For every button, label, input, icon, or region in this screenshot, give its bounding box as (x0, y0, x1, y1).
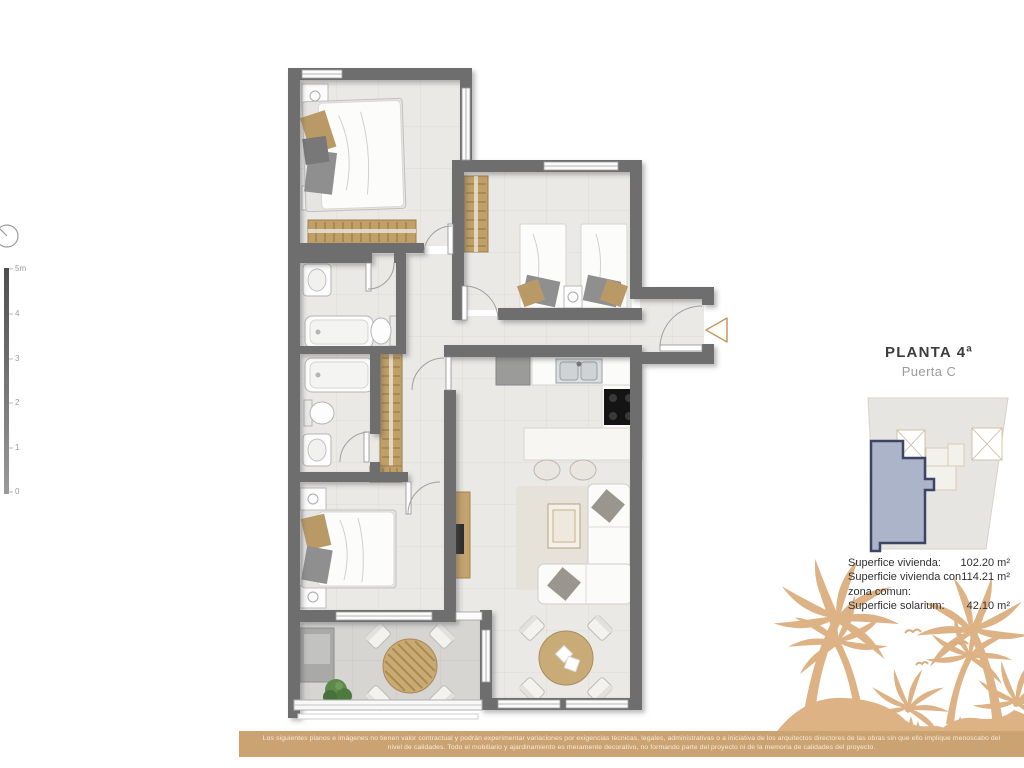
surface-label: Superficie vivienda con zona comun: (848, 570, 961, 599)
disclaimer-bar: Los siguientes planos e imágenes no tien… (239, 731, 1024, 757)
toilet (371, 316, 398, 346)
unit-highlight (871, 441, 934, 551)
floorplan-graphics: 5m 4 3 2 1 0 (0, 0, 1024, 768)
island (524, 428, 642, 460)
toilet (304, 400, 334, 426)
disclaimer-text: Los siguientes planos e imágenes no tien… (239, 731, 1024, 752)
tv (456, 524, 464, 554)
surface-row: Superfice vivienda: 102.20 m² (848, 556, 1010, 570)
plan-header: PLANTA 4ª Puerta C (837, 344, 1021, 379)
compass-icon (0, 225, 18, 247)
entrance-arrow-icon (706, 318, 727, 342)
double-bed (299, 98, 406, 212)
surface-value: 42.10 m² (967, 599, 1010, 613)
surface-row: Superficie solarium: 42.10 m² (848, 599, 1010, 613)
kitchen-sink (556, 359, 602, 383)
coffee-table (548, 504, 580, 548)
scale-tick-2: 2 (15, 398, 20, 407)
surface-value: 114.21 m² (961, 570, 1010, 584)
wardrobe (308, 220, 416, 244)
floorplan-sheet: 5m 4 3 2 1 0 (0, 0, 1024, 768)
scale-tick-1: 1 (15, 443, 20, 452)
twin-bed (517, 224, 566, 308)
nightstand (564, 286, 582, 308)
surface-row: Superficie vivienda con zona comun: 114.… (848, 570, 1010, 599)
surface-summary: Superfice vivienda: 102.20 m² Superficie… (848, 556, 1010, 613)
scale-tick-4: 4 (15, 309, 20, 318)
page-subtitle: Puerta C (837, 364, 1021, 379)
bar-stool (534, 460, 560, 480)
terrace-railing (294, 700, 482, 719)
scale-tick-3: 3 (15, 354, 20, 363)
hallway-closet (380, 350, 402, 482)
wardrobe (464, 176, 488, 252)
scale-tick-5m: 5m (15, 264, 26, 273)
scale-bar: 5m 4 3 2 1 0 (4, 264, 26, 496)
tall-cabinet (496, 357, 530, 385)
double-bed (301, 510, 396, 588)
twin-bed (581, 224, 628, 308)
surface-label: Superfice vivienda: (848, 556, 941, 570)
surface-label: Superficie solarium: (848, 599, 945, 613)
scale-tick-0: 0 (15, 487, 20, 496)
bedroom-1 (299, 84, 416, 244)
entrance-door (660, 345, 702, 351)
page-title: PLANTA 4ª (837, 344, 1021, 361)
surface-value: 102.20 m² (960, 556, 1010, 570)
location-diagram (868, 398, 1008, 551)
bar-stool (570, 460, 596, 480)
sliding-door (456, 612, 482, 620)
